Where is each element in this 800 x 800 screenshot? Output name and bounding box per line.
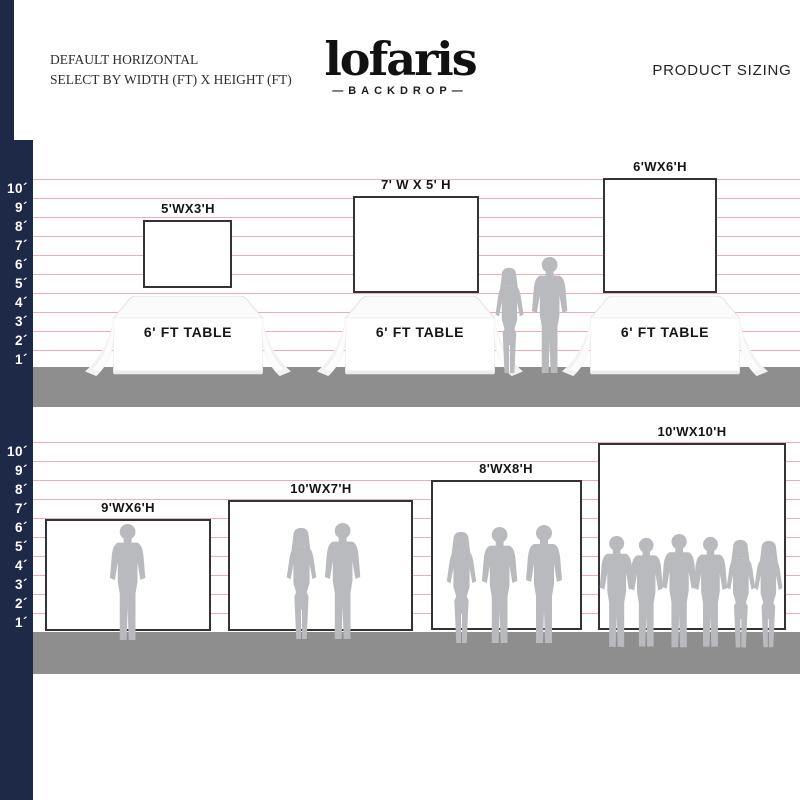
scale-label: 9´	[0, 201, 28, 215]
scale-label: 1´	[0, 616, 28, 630]
brand-logo-word: lofaris	[324, 36, 475, 82]
group-silhouette	[596, 533, 788, 648]
couple-silhouette	[490, 254, 572, 374]
ruler-line-4ft	[33, 293, 800, 294]
scale-label: 9´	[0, 464, 28, 478]
scale-label: 10´	[0, 182, 28, 196]
backdrop-size-label: 5'WX3'H	[161, 201, 215, 216]
backdrop-7x5	[353, 196, 479, 293]
table-label: 6' FT TABLE	[144, 324, 232, 340]
backdrop-size-label: 7' W X 5' H	[381, 177, 451, 192]
table-label: 6' FT TABLE	[621, 324, 709, 340]
scale-label: 1´	[0, 353, 28, 367]
scale-label: 6´	[0, 521, 28, 535]
scale-label: 3´	[0, 315, 28, 329]
brand-logo-subtitle: —BACKDROP—	[324, 85, 475, 97]
scale-label: 10´	[0, 445, 28, 459]
backdrop-size-label: 10'WX7'H	[290, 481, 351, 496]
scale-label: 6´	[0, 258, 28, 272]
scale-label: 2´	[0, 334, 28, 348]
header-line1: DEFAULT HORIZONTAL	[50, 50, 292, 70]
backdrop-size-label: 8'WX8'H	[479, 461, 533, 476]
header-subtitle: DEFAULT HORIZONTAL SELECT BY WIDTH (FT) …	[50, 50, 292, 89]
scale-label: 7´	[0, 502, 28, 516]
scale-label: 8´	[0, 220, 28, 234]
scale-label: 8´	[0, 483, 28, 497]
header-line2: SELECT BY WIDTH (FT) X HEIGHT (FT)	[50, 70, 292, 90]
backdrop-5x3	[143, 220, 232, 288]
scale-label: 2´	[0, 597, 28, 611]
scale-label: 4´	[0, 559, 28, 573]
backdrop-size-label: 9'WX6'H	[101, 500, 155, 515]
page-title: PRODUCT SIZING	[652, 62, 791, 79]
scale-label: 5´	[0, 277, 28, 291]
brand-logo: lofaris —BACKDROP—	[324, 36, 475, 97]
backdrop-size-label: 6'WX6'H	[633, 159, 687, 174]
backdrop-size-label: 10'WX10'H	[657, 424, 726, 439]
man-silhouette	[105, 523, 151, 641]
table-label: 6' FT TABLE	[376, 324, 464, 340]
scale-label: 7´	[0, 239, 28, 253]
product-sizing-chart: DEFAULT HORIZONTAL SELECT BY WIDTH (FT) …	[0, 0, 800, 800]
scale-label: 4´	[0, 296, 28, 310]
backdrop-6x6	[603, 178, 717, 293]
couple-silhouette	[281, 522, 365, 640]
scale-label: 3´	[0, 578, 28, 592]
trio-silhouette	[442, 524, 568, 644]
scale-label: 5´	[0, 540, 28, 554]
